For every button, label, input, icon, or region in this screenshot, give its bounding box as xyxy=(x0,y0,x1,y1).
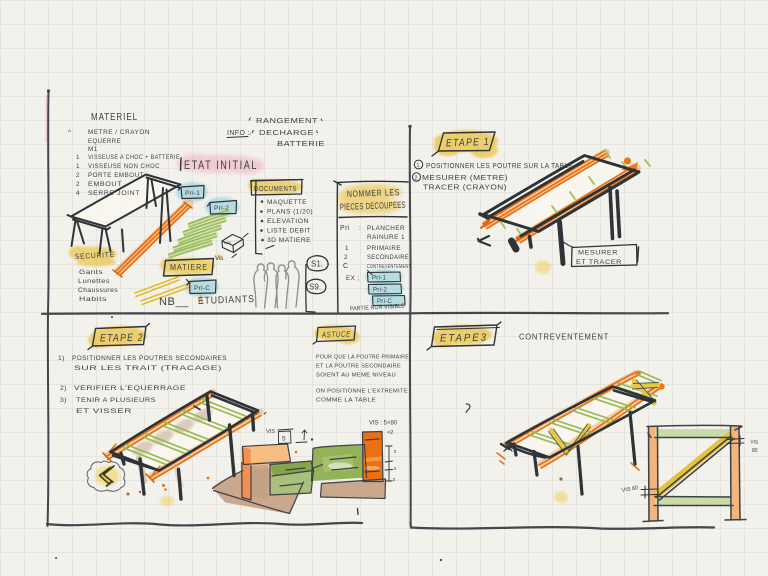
svg-text:ET TRACER: ET TRACER xyxy=(576,259,622,266)
svg-text:VISSEUSE A CHOC + BATTERIE: VISSEUSE A CHOC + BATTERIE xyxy=(88,154,180,161)
svg-text:5: 5 xyxy=(282,436,286,443)
svg-text:2: 2 xyxy=(415,176,418,182)
svg-text:2: 2 xyxy=(76,172,80,179)
svg-text:S9.: S9. xyxy=(309,283,321,292)
svg-text:COMME LA TABLE: COMME LA TABLE xyxy=(316,398,376,404)
svg-text:1: 1 xyxy=(345,245,349,252)
svg-text:Pri: Pri xyxy=(340,225,350,232)
svg-text:VERIFIER L'EQUERRAGE: VERIFIER L'EQUERRAGE xyxy=(74,385,186,392)
svg-text:CONTREVENTEMENT: CONTREVENTEMENT xyxy=(519,333,609,342)
svg-text:1: 1 xyxy=(76,163,80,170)
svg-text:MAQUETTE: MAQUETTE xyxy=(267,199,307,206)
svg-text:2): 2) xyxy=(60,385,67,392)
svg-text:Habits: Habits xyxy=(79,296,107,303)
svg-text:PORTE EMBOUT: PORTE EMBOUT xyxy=(88,172,144,179)
svg-text:INFO :: INFO : xyxy=(227,130,250,137)
svg-text::: : xyxy=(359,225,361,232)
svg-text:PLANS (1/20): PLANS (1/20) xyxy=(267,209,313,216)
svg-text:SERRE JOINT: SERRE JOINT xyxy=(88,190,140,197)
svg-text:3: 3 xyxy=(394,449,397,455)
svg-text:Pri-1: Pri-1 xyxy=(185,190,200,197)
svg-text:SECONDAIRE: SECONDAIRE xyxy=(367,254,409,261)
svg-text:80: 80 xyxy=(752,448,758,454)
svg-text:ETUDIANTS: ETUDIANTS xyxy=(198,294,255,307)
svg-text:RANGEMENT: RANGEMENT xyxy=(256,118,318,125)
svg-text:EX ;: EX ; xyxy=(346,275,360,282)
svg-text:MATIERE: MATIERE xyxy=(170,263,208,272)
svg-text:MESURER (METRE): MESURER (METRE) xyxy=(422,175,508,182)
svg-text:SOIENT AU MEME NIVEAU: SOIENT AU MEME NIVEAU xyxy=(316,373,396,379)
svg-text:ETAPE 2: ETAPE 2 xyxy=(100,332,144,345)
svg-text:PRIMAIRE: PRIMAIRE xyxy=(367,245,401,252)
svg-text:EQUERRE: EQUERRE xyxy=(88,138,121,145)
svg-text:METRE / CRAYON: METRE / CRAYON xyxy=(88,129,150,136)
svg-text:POSITIONNER LES POUTRE SUR: POSITIONNER LES POUTRE SUR LA TABLE xyxy=(426,163,573,170)
svg-text:ET LA POUTRE SECONDAIRE: ET LA POUTRE SECONDAIRE xyxy=(316,364,401,370)
svg-text:2: 2 xyxy=(344,254,348,261)
svg-text:4: 4 xyxy=(76,190,80,197)
svg-text:1: 1 xyxy=(76,154,80,161)
svg-text:^: ^ xyxy=(68,129,71,136)
svg-text:POUR QUE LA POUTRE PRIMAIRE: POUR QUE LA POUTRE PRIMAIRE xyxy=(316,355,409,361)
svg-text:LISTE DEBIT: LISTE DEBIT xyxy=(267,228,311,235)
svg-text:Pri-1: Pri-1 xyxy=(372,276,387,282)
svg-text:CONTREVENTEMENT: CONTREVENTEMENT xyxy=(367,264,411,270)
svg-text:ETAPE3: ETAPE3 xyxy=(440,332,488,345)
svg-text:Pri-2: Pri-2 xyxy=(214,205,229,212)
svg-text:Lunettes: Lunettes xyxy=(78,278,110,285)
svg-text:ETAT INITIAL: ETAT INITIAL xyxy=(184,160,258,172)
svg-text:×2: ×2 xyxy=(387,430,393,436)
svg-text:POSITIONNER LES POUTRES SEC: POSITIONNER LES POUTRES SECONDAIRES xyxy=(72,355,227,362)
svg-text:EMBOUT: EMBOUT xyxy=(88,181,122,188)
svg-text:VIS : 5×80: VIS : 5×80 xyxy=(369,421,398,427)
svg-text:3: 3 xyxy=(393,477,396,483)
svg-text:MESURER: MESURER xyxy=(578,250,618,257)
svg-text:DOCUMENTS: DOCUMENTS xyxy=(254,184,297,193)
svg-text:3): 3) xyxy=(60,397,67,404)
svg-text:M1: M1 xyxy=(88,146,98,153)
svg-text:S1.: S1. xyxy=(311,260,323,269)
svg-text:TENIR A PLUSIEURS: TENIR A PLUSIEURS xyxy=(76,397,156,404)
svg-text:ASTUCE: ASTUCE xyxy=(321,329,351,339)
svg-text:VIS: VIS xyxy=(750,439,759,446)
svg-text:DECHARGE: DECHARGE xyxy=(259,130,314,137)
svg-text:A80: A80 xyxy=(224,240,232,245)
svg-text:Gants: Gants xyxy=(79,269,103,276)
svg-text:Chaussures: Chaussures xyxy=(78,287,118,294)
svg-text:1: 1 xyxy=(417,163,420,169)
svg-text:SUR LES TRAIT (TRACAGE): SUR LES TRAIT (TRACAGE) xyxy=(74,365,222,372)
svg-text:3D MATIERE: 3D MATIERE xyxy=(267,237,311,244)
svg-text:NB__: NB__ xyxy=(159,296,189,308)
svg-text:Pri-2: Pri-2 xyxy=(373,288,388,294)
svg-text:2: 2 xyxy=(76,181,80,188)
svg-text:VISSEUSE NON CHOC: VISSEUSE NON CHOC xyxy=(88,163,160,170)
svg-text:C: C xyxy=(343,263,348,270)
svg-text:ETAPE 1: ETAPE 1 xyxy=(446,136,490,150)
svg-text:ELEVATION: ELEVATION xyxy=(267,218,309,225)
svg-text:Pri-C: Pri-C xyxy=(194,285,210,292)
svg-text:ON POSITIONNE L'EXTREMITE: ON POSITIONNE L'EXTREMITE xyxy=(316,389,408,395)
svg-text:ET VISSER: ET VISSER xyxy=(76,408,132,415)
svg-text:VIS: VIS xyxy=(266,429,275,435)
svg-text:RAINURE 1: RAINURE 1 xyxy=(367,234,405,241)
svg-text:PLANCHER: PLANCHER xyxy=(367,225,405,232)
svg-text:1): 1) xyxy=(58,355,65,362)
svg-text:MATERIEL: MATERIEL xyxy=(91,112,138,123)
svg-text:BATTERIE: BATTERIE xyxy=(277,141,325,148)
svg-text:Vis: Vis xyxy=(215,256,223,262)
svg-text:4: 4 xyxy=(394,466,397,472)
svg-text:TRACER (CRAYON): TRACER (CRAYON) xyxy=(423,185,507,192)
svg-text:NOMMER LES: NOMMER LES xyxy=(347,187,400,199)
